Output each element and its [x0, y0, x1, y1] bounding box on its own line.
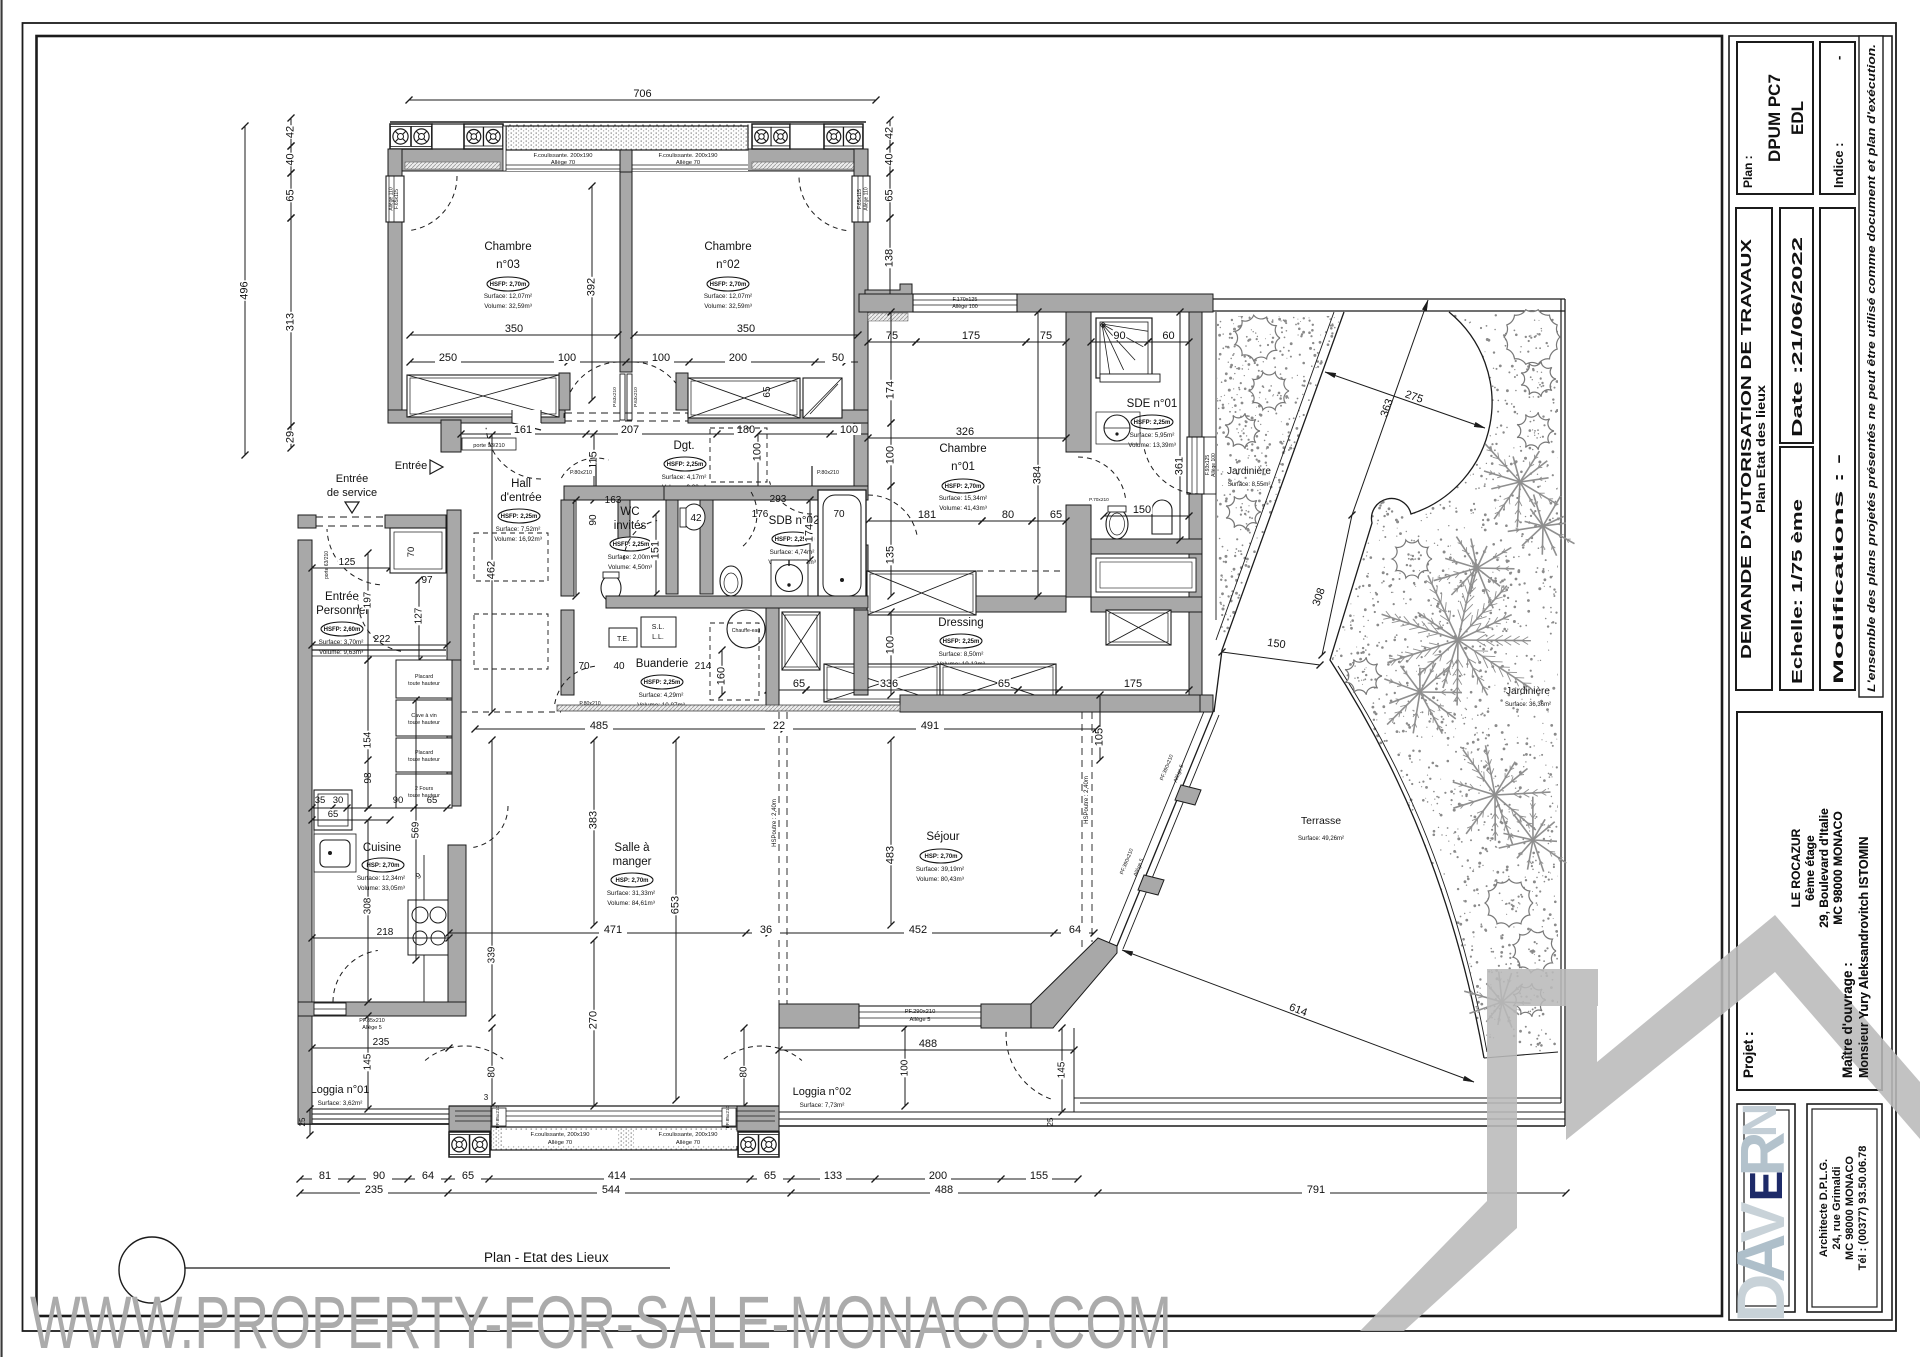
svg-text:115: 115	[588, 451, 600, 469]
svg-text:150: 150	[1266, 637, 1286, 651]
svg-text:F.coulissante. 200x190: F.coulissante. 200x190	[659, 153, 718, 159]
svg-text:339: 339	[487, 946, 498, 963]
svg-text:Séjour: Séjour	[926, 831, 959, 843]
svg-text:25: 25	[1046, 1117, 1055, 1126]
svg-text:P.80x210: P.80x210	[579, 701, 600, 707]
svg-text:336: 336	[880, 678, 898, 690]
svg-text:65: 65	[998, 678, 1010, 690]
svg-text:Surface: 31,33m²: Surface: 31,33m²	[607, 890, 655, 897]
svg-text:Volume: 41,43m³: Volume: 41,43m³	[939, 505, 987, 512]
svg-text:Surface: 4,29m²: Surface: 4,29m²	[639, 692, 684, 699]
svg-text:Surface: 5,95m²: Surface: 5,95m²	[1130, 432, 1175, 439]
svg-text:Allège 100: Allège 100	[952, 304, 977, 310]
svg-text:HSFP: 2,25m: HSFP: 2,25m	[644, 680, 681, 686]
svg-text:100: 100	[885, 446, 897, 464]
svg-text:n°02: n°02	[716, 259, 740, 271]
svg-text:Volume: 80,43m³: Volume: 80,43m³	[916, 876, 964, 883]
svg-text:791: 791	[1307, 1184, 1325, 1196]
svg-text:d'entrée: d'entrée	[500, 492, 541, 504]
svg-text:de service: de service	[327, 487, 377, 499]
svg-text:100: 100	[900, 1059, 911, 1076]
svg-text:235: 235	[373, 1037, 390, 1048]
svg-text:70: 70	[406, 547, 417, 558]
svg-text:70: 70	[578, 661, 590, 672]
svg-text:Loggia n°02: Loggia n°02	[793, 1086, 852, 1098]
svg-text:Architecte D.P.L.G.: Architecte D.P.L.G.	[1818, 1159, 1830, 1257]
svg-text:706: 706	[633, 88, 651, 100]
svg-text:Chambre: Chambre	[484, 241, 531, 253]
svg-text:-: -	[1831, 56, 1846, 60]
svg-text:65: 65	[764, 1170, 776, 1182]
svg-text:toute hauteur: toute hauteur	[408, 681, 440, 687]
svg-text:F.coulissante, 200x190: F.coulissante, 200x190	[531, 1132, 590, 1138]
svg-text:HSFP: 2,70m: HSFP: 2,70m	[490, 282, 527, 288]
svg-text:Volume: 84,61m³: Volume: 84,61m³	[607, 900, 655, 907]
svg-text:42: 42	[884, 127, 896, 139]
svg-text:145: 145	[363, 1053, 374, 1070]
svg-text:Tél : (00377) 93.50.06.78: Tél : (00377) 93.50.06.78	[1857, 1146, 1869, 1271]
svg-text:90: 90	[1113, 330, 1125, 342]
svg-text:30: 30	[333, 795, 344, 806]
svg-text:Volume: 9,63m³: Volume: 9,63m³	[319, 649, 363, 656]
svg-text:Volume: 13,39m³: Volume: 13,39m³	[1128, 442, 1176, 449]
svg-text:361: 361	[1174, 457, 1186, 475]
svg-text:293: 293	[770, 494, 787, 505]
svg-text:81: 81	[319, 1170, 331, 1182]
svg-text:L.L.: L.L.	[652, 634, 664, 641]
svg-text:2 Fours: 2 Fours	[415, 786, 434, 792]
svg-text:Volume: 32,59m³: Volume: 32,59m³	[484, 303, 532, 310]
svg-text:Chauffe-eau: Chauffe-eau	[732, 628, 761, 634]
svg-text:P.63x210: P.63x210	[633, 387, 639, 407]
svg-text:toute hauteur: toute hauteur	[408, 720, 440, 726]
svg-text:Loggia n°01: Loggia n°01	[311, 1084, 370, 1096]
svg-text:125: 125	[339, 557, 356, 568]
svg-text:150: 150	[1133, 504, 1151, 516]
svg-text:HSFP: 2,70m: HSFP: 2,70m	[945, 484, 982, 490]
svg-text:Monsieur Yury Aleksandrovitch: Monsieur Yury Aleksandrovitch ISTOMIN	[1857, 837, 1871, 1079]
svg-text:64: 64	[422, 1170, 434, 1182]
svg-text:HSFP: 2,25m: HSFP: 2,25m	[667, 462, 704, 468]
svg-text:Dgt.: Dgt.	[673, 440, 694, 452]
svg-text:218: 218	[377, 927, 394, 938]
svg-text:WWW.PROPERTY-FOR-SALE-MONACO.C: WWW.PROPERTY-FOR-SALE-MONACO.COM	[30, 1281, 1172, 1357]
svg-text:40: 40	[285, 153, 297, 165]
svg-text:HSPoutre : 2,40m: HSPoutre : 2,40m	[772, 799, 778, 847]
svg-text:Jardinière: Jardinière	[1227, 466, 1271, 477]
svg-text:Plan :: Plan :	[1741, 155, 1755, 188]
svg-text:T.E.: T.E.	[617, 636, 629, 643]
svg-text:WC: WC	[620, 506, 639, 518]
svg-text:161: 161	[514, 424, 532, 436]
svg-text:Plan Etat des lieux: Plan Etat des lieux	[1754, 385, 1768, 513]
svg-text:Jardinière: Jardinière	[1506, 686, 1550, 697]
svg-text:133: 133	[824, 1170, 842, 1182]
svg-text:P.80x210: P.80x210	[817, 470, 839, 476]
svg-text:214: 214	[695, 661, 712, 672]
svg-text:326: 326	[956, 426, 974, 438]
svg-text:Dressing: Dressing	[938, 617, 983, 629]
svg-text:90: 90	[588, 514, 599, 526]
svg-text:100: 100	[558, 352, 576, 364]
svg-text:Projet :: Projet :	[1741, 1031, 1756, 1078]
svg-text:35: 35	[315, 795, 326, 806]
svg-text:N: N	[1734, 1103, 1787, 1138]
svg-text:392: 392	[586, 278, 598, 296]
svg-text:Hall: Hall	[511, 478, 531, 490]
svg-text:127: 127	[414, 607, 425, 624]
svg-text:65: 65	[427, 795, 438, 806]
svg-text:n°01: n°01	[951, 461, 975, 473]
svg-text:Surface: 12,34m²: Surface: 12,34m²	[357, 875, 405, 882]
svg-text:Surface: 36,36m²: Surface: 36,36m²	[1505, 702, 1551, 708]
svg-text:HSP: 2,70m: HSP: 2,70m	[924, 854, 957, 860]
svg-text:163: 163	[605, 495, 622, 506]
svg-text:200: 200	[929, 1170, 947, 1182]
svg-text:Surface: 49,26m²: Surface: 49,26m²	[1298, 836, 1344, 842]
svg-text:488: 488	[919, 1038, 937, 1050]
svg-text:471: 471	[604, 924, 622, 936]
svg-text:452: 452	[909, 924, 927, 936]
svg-text:F.170x125: F.170x125	[953, 297, 978, 303]
svg-text:Allège 70: Allège 70	[676, 1140, 700, 1146]
svg-text:F.coulissante, 200x190: F.coulissante, 200x190	[659, 1132, 718, 1138]
svg-text:491: 491	[921, 720, 939, 732]
svg-text:29, Boulevard d'Italie: 29, Boulevard d'Italie	[1817, 808, 1831, 928]
svg-text:Placard: Placard	[415, 750, 433, 756]
svg-text:Buanderie: Buanderie	[636, 658, 688, 670]
svg-text:F.coulissante. 200x190: F.coulissante. 200x190	[534, 153, 593, 159]
svg-text:200: 200	[729, 352, 747, 364]
svg-text:24, rue Grimaldi: 24, rue Grimaldi	[1831, 1166, 1843, 1249]
svg-text:65: 65	[1050, 509, 1062, 521]
svg-text:F.65x115: F.65x115	[857, 189, 863, 209]
svg-text:Allège 110: Allège 110	[864, 187, 870, 210]
svg-text:75: 75	[1040, 330, 1052, 342]
svg-text:50: 50	[832, 352, 844, 364]
svg-text:Surface: 39,19m²: Surface: 39,19m²	[916, 866, 964, 873]
svg-text:75: 75	[886, 330, 898, 342]
svg-text:64: 64	[1069, 924, 1081, 936]
svg-text:70: 70	[833, 509, 845, 520]
svg-text:SDE n°01: SDE n°01	[1127, 398, 1178, 410]
svg-text:HSPoutre : 2,40m: HSPoutre : 2,40m	[1084, 776, 1090, 824]
svg-text:135: 135	[885, 546, 897, 564]
svg-text:Entrée: Entrée	[336, 473, 368, 485]
svg-text:Allège 5: Allège 5	[362, 1025, 381, 1031]
svg-text:DEMANDE D'AUTORISATION DE TRAV: DEMANDE D'AUTORISATION DE TRAVAUX	[1739, 239, 1755, 659]
svg-text:Surface: 15,34m²: Surface: 15,34m²	[939, 495, 987, 502]
svg-text:HSFP: 2,25m: HSFP: 2,25m	[1134, 420, 1171, 426]
svg-text:Placard: Placard	[415, 674, 433, 680]
svg-text:65: 65	[285, 189, 297, 201]
svg-text:414: 414	[608, 1170, 626, 1182]
svg-text:154: 154	[363, 731, 374, 748]
svg-text:40: 40	[884, 153, 896, 165]
svg-text:138: 138	[884, 249, 896, 267]
svg-text:MC 98000 MONACO: MC 98000 MONACO	[1844, 1156, 1856, 1260]
svg-text:PF.85x210: PF.85x210	[495, 1105, 501, 1128]
svg-text:Surface: 7,52m²: Surface: 7,52m²	[496, 526, 541, 533]
svg-text:EDL: EDL	[1788, 101, 1807, 135]
svg-text:42: 42	[285, 126, 297, 138]
svg-text:Volume: 16,92m³: Volume: 16,92m³	[494, 536, 542, 543]
svg-text:porte 93/210: porte 93/210	[473, 443, 504, 449]
svg-text:Surface: 12,07m²: Surface: 12,07m²	[704, 293, 752, 300]
svg-text:90: 90	[393, 795, 404, 806]
svg-text:PF.85x210: PF.85x210	[725, 1105, 731, 1128]
svg-text:384: 384	[1032, 466, 1044, 484]
svg-text:V: V	[1729, 1201, 1798, 1242]
svg-text:100: 100	[885, 636, 897, 654]
svg-text:Surface: 4,17m²: Surface: 4,17m²	[662, 474, 707, 481]
svg-text:36: 36	[760, 924, 772, 936]
svg-text:HSP: 2,70m: HSP: 2,70m	[366, 863, 399, 869]
svg-text:207: 207	[621, 424, 639, 436]
svg-text:350: 350	[505, 323, 523, 335]
svg-text:235: 235	[365, 1184, 383, 1196]
svg-text:S.L.: S.L.	[652, 624, 665, 631]
svg-text:PF.290x210: PF.290x210	[905, 1009, 936, 1015]
svg-text:60: 60	[1162, 330, 1174, 342]
svg-text:496: 496	[239, 281, 251, 299]
svg-text:Surface: 2,00m²: Surface: 2,00m²	[608, 554, 653, 561]
svg-text:Cuisine: Cuisine	[363, 842, 401, 854]
svg-text:HSFP: 2,25m: HSFP: 2,25m	[943, 639, 980, 645]
svg-text:Chambre: Chambre	[704, 241, 751, 253]
svg-text:175: 175	[962, 330, 980, 342]
svg-text:97: 97	[421, 575, 433, 586]
svg-text:HSFP: 2,70m: HSFP: 2,70m	[710, 282, 747, 288]
svg-text:Surface: 7,73m²: Surface: 7,73m²	[800, 1102, 845, 1109]
svg-text:DPUM PC7: DPUM PC7	[1765, 74, 1784, 162]
svg-text:80: 80	[487, 1066, 498, 1078]
svg-text:25: 25	[298, 1117, 307, 1126]
svg-text:Entrée: Entrée	[325, 591, 359, 603]
svg-text:65: 65	[762, 386, 773, 398]
svg-text:174: 174	[885, 381, 897, 399]
svg-text:HSFP: 2,25m: HSFP: 2,25m	[613, 542, 650, 548]
svg-text:485: 485	[590, 720, 608, 732]
svg-text:HSFP: 2,25m: HSFP: 2,25m	[501, 514, 538, 520]
svg-text:313: 313	[285, 313, 297, 331]
svg-text:Terrasse: Terrasse	[1301, 815, 1341, 827]
svg-text:Plan - Etat des Lieux: Plan - Etat des Lieux	[484, 1250, 609, 1265]
svg-text:29: 29	[285, 431, 297, 443]
svg-text:P.63x210: P.63x210	[612, 387, 618, 407]
svg-text:98: 98	[363, 772, 374, 784]
svg-text:544: 544	[602, 1184, 620, 1196]
svg-text:80: 80	[739, 1066, 750, 1078]
svg-text:151: 151	[650, 541, 662, 559]
svg-text:F.65x115: F.65x115	[394, 189, 400, 209]
svg-text:483: 483	[885, 846, 897, 864]
svg-text:PF.85x210: PF.85x210	[359, 1018, 384, 1024]
svg-text:Maître d'ouvrage :: Maître d'ouvrage :	[1840, 962, 1855, 1078]
svg-text:manger: manger	[613, 856, 652, 868]
svg-text:invités: invités	[614, 520, 647, 532]
svg-text:Date :21/06/2022: Date :21/06/2022	[1790, 237, 1806, 437]
svg-text:90: 90	[373, 1170, 385, 1182]
svg-text:462: 462	[486, 561, 498, 579]
svg-text:653: 653	[670, 896, 682, 914]
svg-text:100: 100	[752, 443, 764, 461]
svg-text:65: 65	[884, 189, 896, 201]
svg-text:Allège 110: Allège 110	[389, 187, 395, 210]
svg-text:308: 308	[363, 897, 374, 914]
svg-text:porte 63/210: porte 63/210	[324, 551, 330, 579]
svg-text:350: 350	[737, 323, 755, 335]
svg-text:Modifications : -: Modifications : -	[1831, 454, 1846, 684]
svg-text:174: 174	[804, 524, 816, 542]
svg-text:65: 65	[328, 809, 339, 820]
svg-text:270: 270	[588, 1011, 600, 1029]
svg-text:160: 160	[716, 667, 728, 685]
svg-text:Echelle: 1/75 ème: Echelle: 1/75 ème	[1790, 499, 1806, 684]
svg-text:Surface: 4,74m²: Surface: 4,74m²	[770, 549, 815, 556]
svg-text:toute hauteur: toute hauteur	[408, 757, 440, 763]
svg-text:n°03: n°03	[496, 259, 520, 271]
svg-text:Cave à vin: Cave à vin	[411, 713, 436, 719]
svg-text:250: 250	[439, 352, 457, 364]
svg-text:40: 40	[613, 661, 625, 672]
svg-text:488: 488	[935, 1184, 953, 1196]
svg-text:Surface: 12,07m²: Surface: 12,07m²	[484, 293, 532, 300]
svg-text:6ème étage: 6ème étage	[1803, 835, 1817, 901]
svg-text:197: 197	[363, 591, 374, 608]
svg-text:Entrée: Entrée	[395, 460, 427, 472]
svg-text:65: 65	[793, 678, 805, 690]
svg-text:L'ensemble des plans projetés: L'ensemble des plans projetés présentés …	[1866, 44, 1878, 692]
svg-text:569: 569	[411, 821, 422, 838]
svg-text:Allège 5: Allège 5	[910, 1017, 931, 1023]
svg-text:Volume: 4,50m³: Volume: 4,50m³	[608, 564, 652, 571]
svg-text:Chambre: Chambre	[939, 443, 986, 455]
svg-text:181: 181	[918, 509, 936, 521]
svg-text:3: 3	[484, 1093, 489, 1102]
svg-text:145: 145	[1057, 1061, 1068, 1078]
svg-text:Surface: 8,50m²: Surface: 8,50m²	[939, 651, 984, 658]
svg-text:LE ROCAZUR: LE ROCAZUR	[1789, 828, 1803, 907]
svg-text:42: 42	[690, 513, 702, 524]
svg-text:Allège 70: Allège 70	[548, 1140, 572, 1146]
svg-text:65: 65	[462, 1170, 474, 1182]
svg-text:180: 180	[737, 424, 755, 436]
svg-text:Surface: 8,55m²: Surface: 8,55m²	[1228, 482, 1271, 488]
svg-text:P.70x210: P.70x210	[1089, 497, 1109, 503]
svg-text:Volume: 32,59m³: Volume: 32,59m³	[704, 303, 752, 310]
svg-text:HSP: 2,70m: HSP: 2,70m	[615, 878, 648, 884]
svg-text:100: 100	[840, 424, 858, 436]
svg-text:22: 22	[773, 720, 785, 732]
svg-text:100: 100	[652, 352, 670, 364]
svg-text:Volume: 33,05m³: Volume: 33,05m³	[357, 885, 405, 892]
svg-text:Salle à: Salle à	[614, 842, 650, 854]
svg-text:Surface: 3,62m²: Surface: 3,62m²	[318, 1100, 363, 1107]
svg-text:MC 98000 MONACO: MC 98000 MONACO	[1831, 811, 1845, 924]
svg-text:155: 155	[1030, 1170, 1048, 1182]
svg-text:HSFP: 2,60m: HSFP: 2,60m	[324, 627, 361, 633]
svg-text:176: 176	[752, 509, 769, 520]
svg-text:175: 175	[1124, 678, 1142, 690]
svg-text:383: 383	[588, 811, 600, 829]
svg-text:P.80x210: P.80x210	[570, 470, 592, 476]
svg-text:80: 80	[1002, 509, 1014, 521]
svg-text:Indice :: Indice :	[1831, 142, 1846, 188]
